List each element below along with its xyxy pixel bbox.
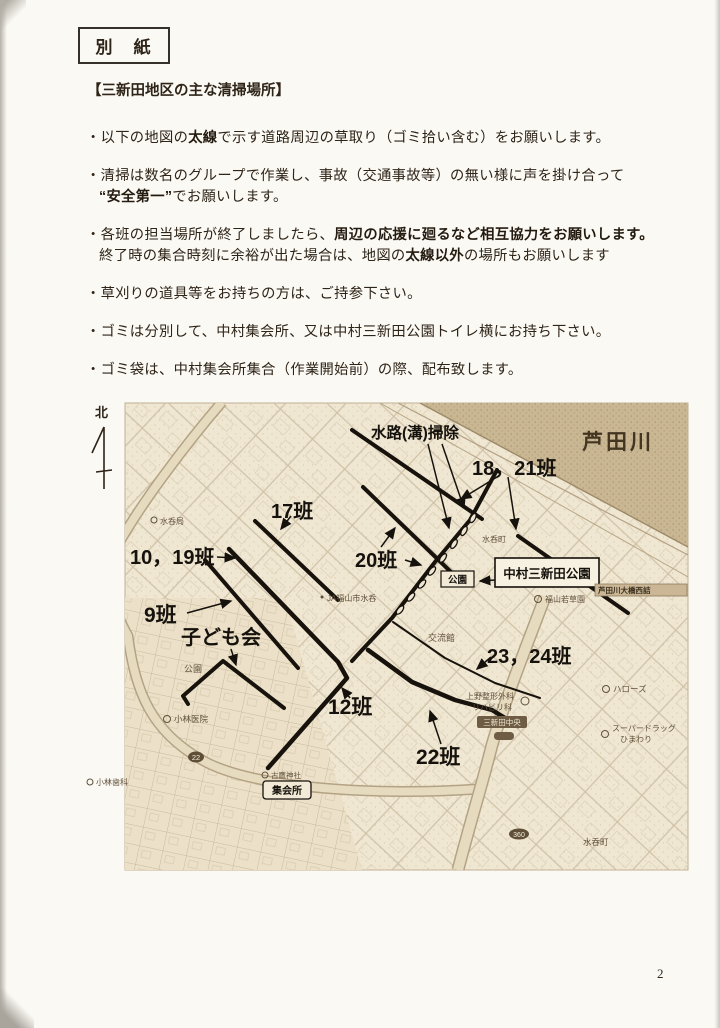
north-compass: 北	[92, 405, 112, 489]
north-label: 北	[95, 405, 108, 420]
bullet-1-text2: で示す道路周辺の草取り（ゴミ拾い含む）をお願いします。	[217, 130, 610, 146]
nakamura-park-label: 中村三新田公園	[503, 566, 591, 581]
park-box-label: 公園	[448, 575, 467, 586]
ja-dot-icon	[321, 596, 324, 599]
route-badge-small	[494, 732, 514, 740]
label-group-17: 17班	[271, 500, 313, 523]
bullet-3-line2: 終了時の集合時刻に余裕が出た場合は、地図の太線以外の場所もお願いします	[99, 244, 610, 265]
bullet-3-text: ・各班の担当場所が終了しましたら、	[86, 227, 334, 243]
bullet-1-text: ・以下の地図の	[86, 130, 188, 146]
scan-corner-top-left	[0, 0, 26, 30]
label-shrine: 古鷹神社	[271, 770, 301, 780]
bullet-5: ・ゴミは分別して、中村集会所、又は中村三新田公園トイレ横にお持ち下さい。	[86, 320, 610, 341]
scan-edge-right	[714, 0, 720, 1028]
label-mizunomi-postoffice: 水呑局	[160, 516, 184, 526]
label-hellows: ハローズ	[613, 684, 647, 694]
bullet-6: ・ゴミ袋は、中村集会所集合（作業開始前）の際、配布致します。	[86, 358, 522, 379]
scan-edge-left	[0, 0, 7, 1028]
label-ohashi: 芦田川大橋西詰	[598, 585, 651, 595]
bullet-3-bold2: 太線以外	[406, 248, 464, 264]
bullet-3-bold: 周辺の応援に廻るなど相互協力をお願いします。	[334, 227, 654, 243]
label-group-18-21: 18，21班	[472, 457, 557, 480]
label-group-23-24: 23，24班	[487, 645, 572, 668]
scan-corner-bottom-left	[0, 988, 34, 1028]
route-360-number: 360	[513, 832, 525, 839]
label-mizunomicho-lower: 水呑町	[583, 837, 609, 847]
section-heading: 【三新田地区の主な清掃場所】	[87, 79, 290, 100]
label-group-12: 12班	[328, 696, 372, 719]
bullet-2-line2: “安全第一”でお願いします。	[99, 185, 288, 206]
label-kobayashi-dental: 小林歯科	[96, 777, 128, 787]
north-arrow-icon	[92, 427, 112, 489]
label-koryukan: 交流館	[428, 632, 455, 643]
label-waterway-cleaning: 水路(溝)掃除	[371, 423, 459, 442]
bullet-4: ・草刈りの道具等をお持ちの方は、ご持参下さい。	[86, 282, 422, 303]
label-kobayashi-clinic: 小林医院	[174, 714, 209, 724]
bullet-2-bold: “安全第一”	[99, 189, 172, 205]
page-number: 2	[657, 966, 664, 982]
arrow-10-19	[217, 557, 235, 558]
bullet-1-bold: 太線	[188, 130, 217, 146]
label-ja-fukuyama: JA福山市水呑	[327, 593, 376, 603]
label-drugstore-1: スーパードラッグ	[612, 723, 676, 733]
bullet-2-text: でお願いします。	[172, 189, 287, 205]
label-ueno-clinic-1: 上野整形外科	[466, 691, 514, 701]
label-mizunomicho-upper: 水呑町	[482, 534, 506, 544]
attachment-title-box: 別 紙	[78, 27, 170, 64]
label-drugstore-2: ひまわり	[620, 735, 652, 744]
label-group-22: 22班	[416, 746, 460, 769]
arrow-park-box	[480, 580, 495, 581]
label-wakakusa: 福山若草園	[545, 594, 585, 604]
label-ueno-clinic-2: リハビリ科	[472, 702, 512, 712]
meeting-hall-label: 集会所	[271, 784, 302, 797]
bullet-3-line1: ・各班の担当場所が終了しましたら、周辺の応援に廻るなど相互協力をお願いします。	[86, 223, 654, 244]
label-ashida-river: 芦田川	[582, 430, 654, 454]
label-group-10-19: 10，19班	[130, 546, 215, 569]
label-group-9: 9班	[144, 604, 177, 627]
attachment-title: 別 紙	[96, 33, 153, 58]
label-kodomokai: 子ども会	[181, 625, 261, 649]
bullet-1: ・以下の地図の太線で示す道路周辺の草取り（ゴミ拾い含む）をお願いします。	[86, 126, 610, 147]
district-map: 公園 中村三新田公園 集会所 水呑局 JA福山市水呑 水呑町 福山若草園 芦田川…	[85, 395, 690, 875]
bullet-2-line1: ・清掃は数名のグループで作業し、事故（交通事故等）の無い様に声を掛け合って	[86, 164, 625, 185]
route-22-number: 22	[192, 753, 200, 762]
label-group-20: 20班	[355, 549, 397, 572]
kobayashi-dental-icon	[87, 779, 93, 785]
bullet-3-text2: 終了時の集合時刻に余裕が出た場合は、地図の	[99, 248, 406, 264]
label-misanden-chuo: 三新田中央	[483, 717, 521, 727]
bullet-3-text3: の場所もお願いします	[464, 248, 610, 264]
label-park-southwest: 公園	[184, 664, 202, 674]
scanned-document-page: 別 紙 【三新田地区の主な清掃場所】 ・以下の地図の太線で示す道路周辺の草取り（…	[0, 0, 720, 1028]
